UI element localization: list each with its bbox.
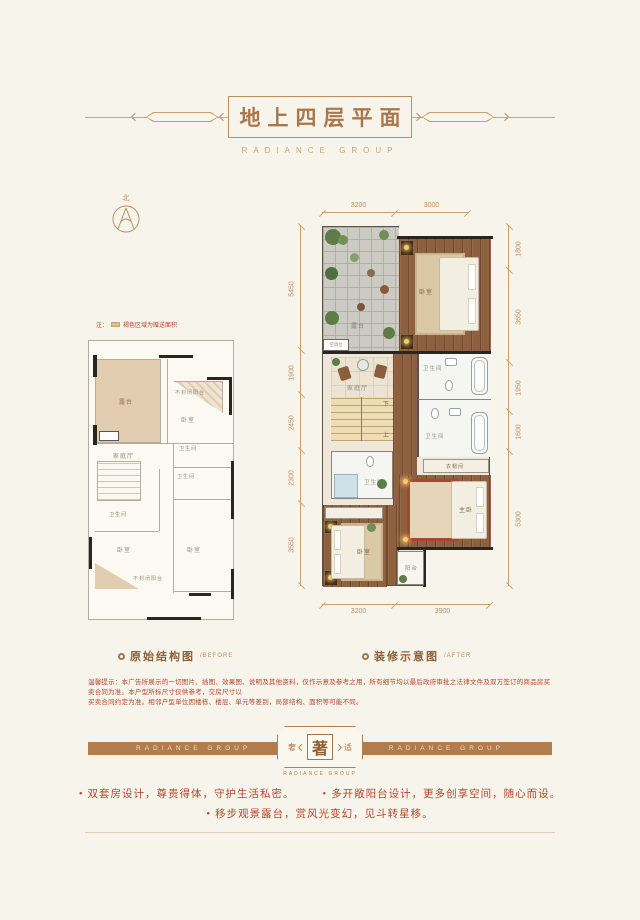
- title-box: 地上四层平面: [228, 96, 412, 138]
- dim-left-5: 3550: [300, 504, 301, 586]
- dim-right-3: 1950: [508, 363, 509, 412]
- bedroom-top: 卧室: [399, 239, 491, 351]
- feature-item: •多开敞阳台设计，更多创享空间，随心而设。: [323, 786, 562, 801]
- disclaimer-line1: 温馨提示：本广告所展示的一切图片、插图、效果图、说明及其他资料，仅作示意及参考之…: [88, 678, 552, 698]
- brand-badge: 奢 著 适: [277, 726, 363, 768]
- open-balcony-hatch: [173, 381, 223, 413]
- badge-chevron-left-icon: [298, 743, 305, 750]
- feature-row-1: •双套房设计，尊贵得体，守护生活私密。 •多开敞阳台设计，更多创享空间，随心而设…: [0, 786, 640, 801]
- ring-bullet-icon: [362, 653, 369, 660]
- ring-bullet-icon: [118, 653, 125, 660]
- bed: [439, 257, 479, 331]
- family-hall: 家庭厅: [331, 357, 393, 397]
- compass-glyph: [111, 204, 141, 234]
- balcony: 阳台: [397, 551, 424, 585]
- bottom-rule: [85, 832, 555, 833]
- chevron-right-icon: [501, 113, 509, 121]
- header-ornament-bar-left: [146, 112, 218, 122]
- badge-char-left: 奢: [288, 742, 296, 753]
- banner-text-right: RADIANCE GROUP: [389, 745, 504, 752]
- bathroom-mid: 卫生间: [417, 399, 491, 457]
- ac-unit-box: 空调位: [323, 339, 349, 351]
- disclaimer: 温馨提示：本广告所展示的一切图片、插图、效果图、说明及其他资料，仅作示意及参考之…: [88, 678, 552, 708]
- cloakroom: 衣帽间: [423, 459, 489, 473]
- chevron-left-icon: [219, 113, 227, 121]
- banner-text-left: RADIANCE GROUP: [136, 745, 251, 752]
- dim-left-2: 1900: [300, 351, 301, 395]
- disclaimer-line2: 买卖合同约定为准。相邻户型单位因楼栋、楼层、单元等差别，局部结构、面积等可能不同…: [88, 698, 552, 708]
- dim-right-5: 5300: [508, 452, 509, 586]
- caption-before: 原始结构图 /BEFORE: [118, 648, 233, 664]
- dim-left-1: 5450: [300, 226, 301, 351]
- compass-north-label: 北: [108, 193, 144, 203]
- badge-char-right: 适: [344, 742, 352, 753]
- chevron-right-icon: [413, 113, 421, 121]
- bathroom-low: 卫生间: [331, 451, 393, 499]
- header-ornament-bar-right: [422, 112, 494, 122]
- master-bedroom: 主卧: [399, 475, 491, 547]
- caption-after: 装修示意图 /AFTER: [362, 648, 471, 664]
- gift-area-note: 注： 褐色区域为赠送面积: [96, 320, 177, 329]
- chevron-left-icon: [131, 113, 139, 121]
- badge-subtext: RADIANCE GROUP: [270, 771, 370, 777]
- stairs: 下 上: [331, 397, 393, 441]
- ac-unit-box: [99, 431, 119, 441]
- header-subtitle: RADIANCE GROUP: [0, 146, 640, 155]
- feature-item: •移步观景露台，赏风光变幻，见斗转星移。: [206, 806, 433, 821]
- feature-row-2: •移步观景露台，赏风光变幻，见斗转星移。: [0, 806, 640, 821]
- badge-core: 著: [307, 734, 333, 760]
- badge-chevron-right-icon: [335, 743, 342, 750]
- dim-top-2: 3000: [395, 212, 468, 213]
- dim-right-1: 1800: [508, 226, 509, 271]
- bedroom-bottom: 卧室: [323, 505, 387, 587]
- color-swatch: [111, 322, 120, 327]
- compass-icon: 北: [108, 193, 144, 239]
- decorated-plan: 露台 空调位 卧室: [322, 226, 490, 586]
- bathroom-top: 卫生间: [417, 354, 491, 399]
- page-title: 地上四层平面: [233, 102, 408, 132]
- dim-top-1: 3200: [322, 212, 395, 213]
- stairs-sketch: [97, 461, 141, 501]
- dim-bottom-1: 3200: [322, 604, 395, 605]
- dim-left-3: 2450: [300, 395, 301, 451]
- dim-right-2: 3650: [508, 271, 509, 363]
- dim-right-4: 1600: [508, 412, 509, 452]
- dim-left-4: 2300: [300, 451, 301, 504]
- feature-item: •双套房设计，尊贵得体，守护生活私密。: [79, 786, 295, 801]
- original-structure-plan: 露台 不封闭阳台 卧室 卫生间 家庭厅 卫生间 卫生间 卧室: [88, 340, 234, 620]
- dim-bottom-2: 3900: [395, 604, 490, 605]
- brochure-page: 地上四层平面 RADIANCE GROUP 北 注： 褐色区域为赠送面积 露台 …: [0, 0, 640, 920]
